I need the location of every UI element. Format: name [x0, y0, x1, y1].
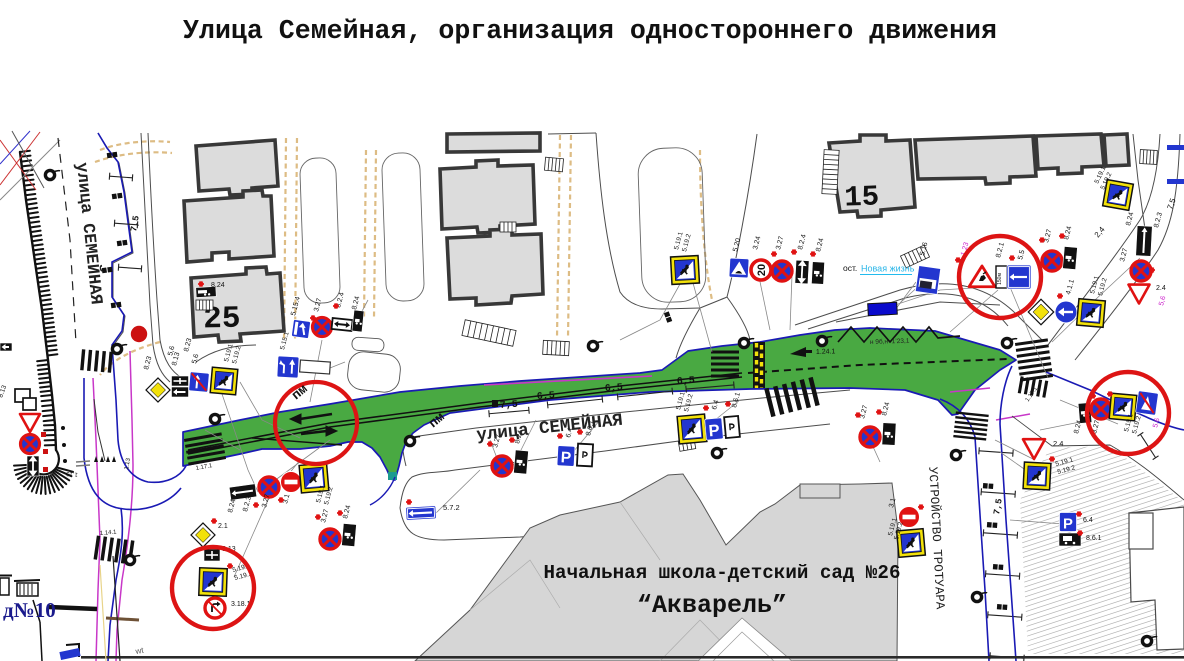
svg-text:1.24.1: 1.24.1: [816, 348, 836, 356]
svg-text:7,5: 7,5: [500, 400, 519, 412]
svg-text:150м: 150м: [997, 273, 1003, 285]
svg-text:ост.: ост.: [843, 263, 857, 273]
svg-text:8.24: 8.24: [211, 282, 225, 289]
svg-text:Улица Семейная, организация од: Улица Семейная, организация односторонне…: [183, 16, 997, 46]
svg-text:20: 20: [756, 264, 768, 276]
svg-text:15: 15: [844, 180, 880, 214]
svg-text:6.4: 6.4: [1083, 517, 1093, 524]
svg-text:2.4: 2.4: [1053, 439, 1063, 448]
svg-text:Новая жизнь: Новая жизнь: [861, 264, 915, 274]
svg-text:P: P: [1063, 516, 1073, 532]
svg-text:P: P: [560, 449, 571, 467]
svg-text:6,5: 6,5: [605, 383, 624, 395]
svg-text:“Акварель”: “Акварель”: [637, 591, 787, 620]
svg-text:1.13: 1.13: [65, 470, 78, 477]
svg-text:Начальная школа-детский сад №2: Начальная школа-детский сад №26: [544, 562, 901, 584]
svg-text:6,5: 6,5: [537, 391, 556, 403]
svg-text:P: P: [708, 421, 721, 440]
svg-text:н 9б,н 1’23,1: н 9б,н 1’23,1: [870, 337, 910, 346]
svg-text:2.1: 2.1: [218, 523, 228, 530]
svg-text:д№10: д№10: [3, 598, 56, 622]
svg-text:5.7.2: 5.7.2: [443, 503, 460, 512]
svg-text:8.6.1: 8.6.1: [1086, 535, 1102, 542]
svg-text:2.4: 2.4: [1156, 285, 1166, 292]
